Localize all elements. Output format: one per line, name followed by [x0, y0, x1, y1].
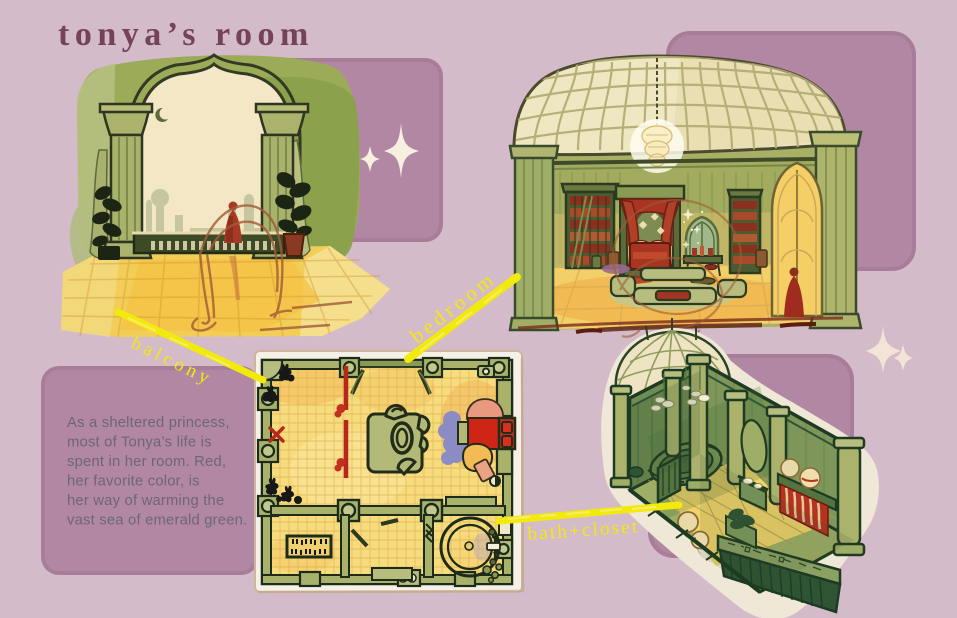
svg-text:tonya’s room: tonya’s room — [58, 16, 314, 53]
